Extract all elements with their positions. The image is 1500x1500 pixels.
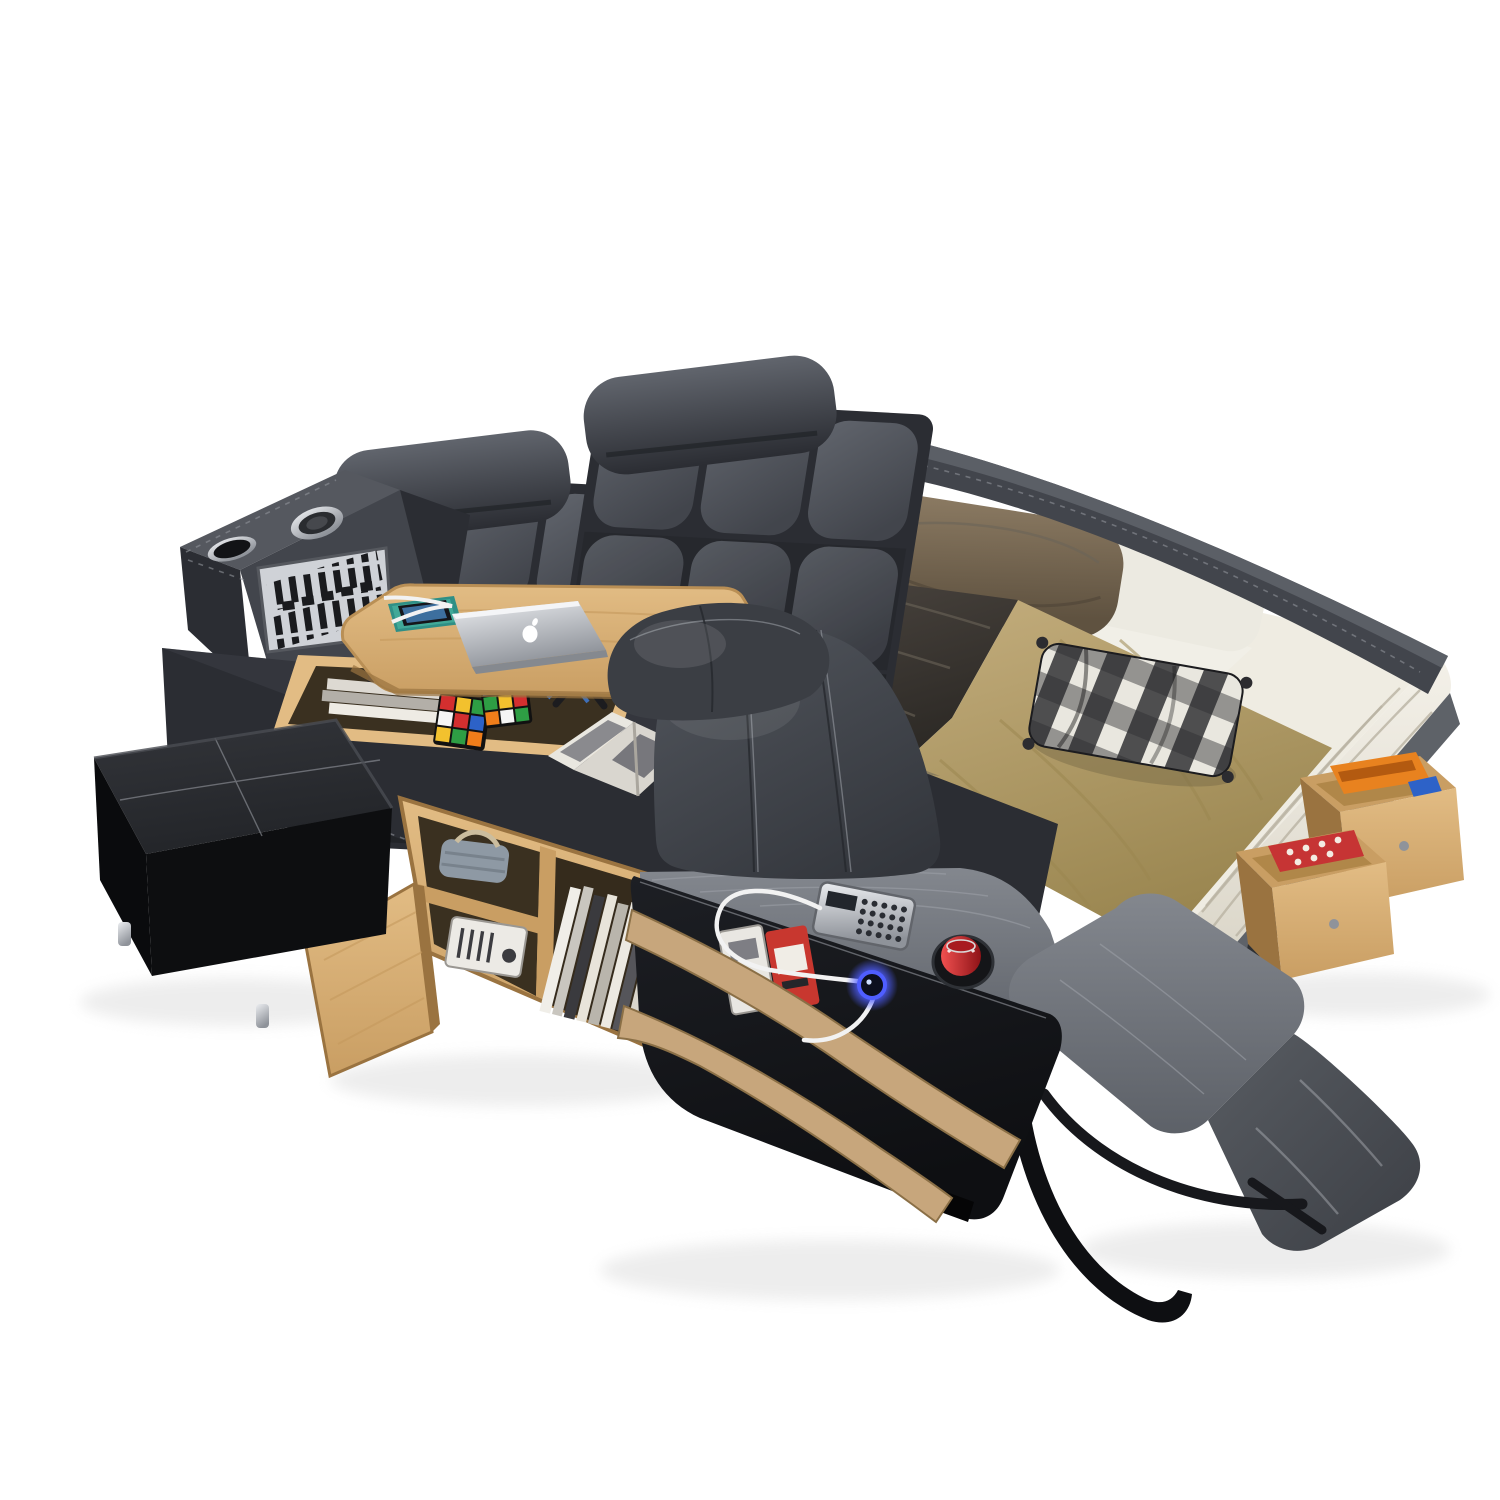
soda-can	[933, 936, 993, 988]
usb-glow-ring	[846, 959, 898, 1011]
shelf-radio	[445, 916, 528, 977]
smart-bed-photo	[0, 0, 1500, 1500]
product-photo-stage	[0, 0, 1500, 1500]
